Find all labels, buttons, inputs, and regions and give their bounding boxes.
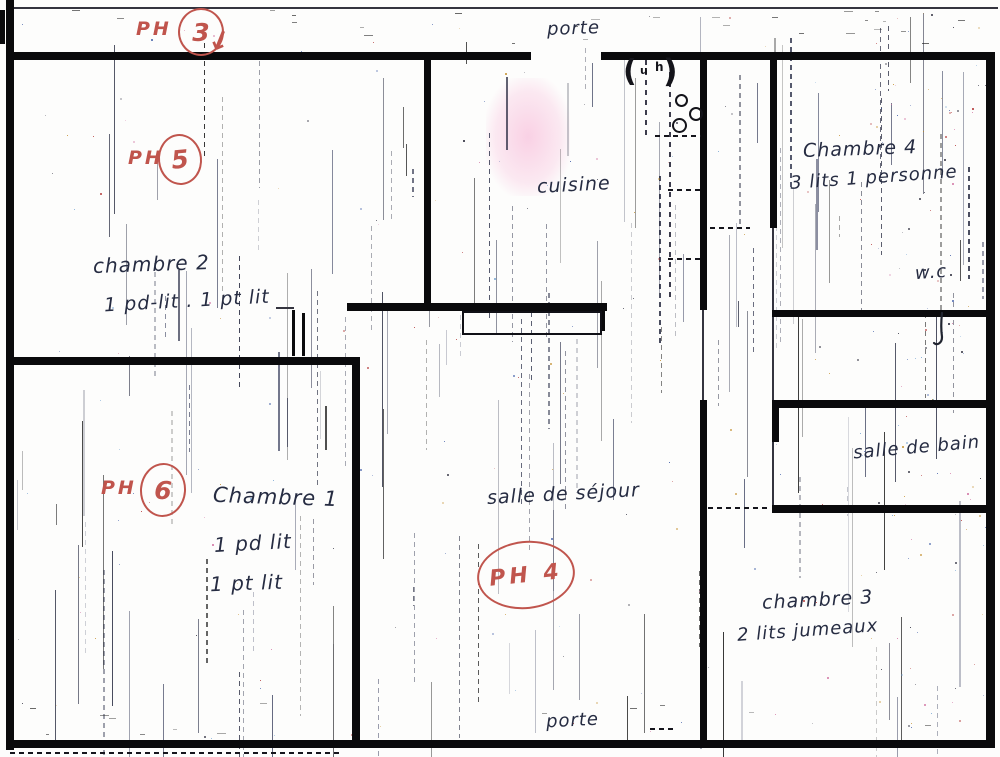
streak bbox=[929, 543, 931, 545]
streak bbox=[269, 317, 271, 319]
streak bbox=[30, 708, 36, 709]
streak bbox=[579, 614, 580, 700]
streak bbox=[927, 308, 928, 309]
streak bbox=[45, 115, 46, 116]
streak bbox=[56, 504, 57, 525]
streak bbox=[345, 317, 346, 467]
streak bbox=[506, 77, 508, 150]
streak bbox=[927, 394, 929, 396]
streak bbox=[793, 187, 794, 324]
wall-cuisine-left bbox=[424, 58, 431, 308]
streak bbox=[269, 403, 271, 405]
streak bbox=[258, 200, 259, 254]
streak bbox=[460, 315, 461, 360]
closet-front-dash-line bbox=[669, 62, 671, 300]
streak bbox=[738, 301, 739, 327]
streak bbox=[27, 493, 28, 494]
streak bbox=[141, 511, 142, 512]
streak bbox=[911, 727, 912, 728]
streak bbox=[658, 258, 660, 260]
streak bbox=[414, 327, 415, 328]
streak bbox=[865, 20, 868, 21]
streak bbox=[968, 306, 969, 307]
streak bbox=[129, 611, 130, 757]
streak bbox=[925, 347, 927, 349]
streak bbox=[875, 11, 879, 12]
streak bbox=[260, 703, 267, 704]
wall-bottom-dash-line bbox=[10, 752, 340, 754]
streak bbox=[274, 735, 275, 736]
streak bbox=[749, 712, 754, 713]
floor-plan-scan: ( ) u h porte cuisine chambre 2 1 pd-lit… bbox=[0, 0, 1000, 757]
streak bbox=[371, 226, 372, 334]
streak bbox=[753, 248, 754, 355]
streak bbox=[908, 471, 910, 473]
wall-wc-top bbox=[772, 310, 993, 317]
streak bbox=[93, 136, 94, 137]
streak bbox=[925, 725, 931, 726]
streak bbox=[921, 475, 922, 476]
streak bbox=[906, 254, 907, 255]
streak bbox=[474, 178, 475, 308]
streak bbox=[919, 198, 921, 200]
streak bbox=[950, 473, 951, 474]
streak bbox=[889, 274, 891, 276]
wall-cuisine-bottom bbox=[347, 303, 607, 311]
streak bbox=[270, 10, 275, 11]
streak bbox=[103, 570, 105, 757]
streak bbox=[902, 232, 903, 233]
streak bbox=[204, 43, 205, 157]
wall-chambre3-top bbox=[772, 505, 993, 513]
streak bbox=[782, 45, 783, 248]
wc-down-arrow-icon bbox=[933, 312, 949, 348]
streak bbox=[870, 123, 872, 125]
streak bbox=[22, 24, 23, 25]
streak bbox=[426, 340, 427, 450]
streak bbox=[317, 291, 318, 486]
fixture-circle-2 bbox=[689, 107, 703, 121]
wall-outer-top-right bbox=[601, 52, 993, 60]
streak bbox=[78, 545, 79, 704]
streak bbox=[82, 421, 83, 547]
streak bbox=[456, 339, 457, 340]
closet-dash-3 bbox=[668, 258, 702, 260]
streak bbox=[898, 425, 899, 426]
streak bbox=[628, 604, 630, 606]
streak bbox=[910, 17, 911, 83]
streak bbox=[937, 473, 938, 474]
streak bbox=[287, 398, 288, 447]
streak bbox=[442, 502, 444, 504]
streak bbox=[917, 632, 918, 633]
streak bbox=[22, 703, 23, 704]
streak bbox=[521, 319, 522, 508]
streak bbox=[718, 340, 719, 406]
closet-mark-1: u bbox=[640, 64, 648, 77]
streak bbox=[494, 468, 495, 469]
streak bbox=[979, 515, 981, 517]
room-label-cuisine: cuisine bbox=[536, 172, 611, 198]
streak bbox=[560, 342, 561, 484]
streak bbox=[72, 10, 80, 11]
streak bbox=[83, 390, 85, 516]
streak bbox=[391, 151, 392, 220]
streak bbox=[626, 514, 627, 515]
streak bbox=[85, 522, 86, 657]
streak bbox=[961, 520, 962, 521]
streak bbox=[908, 725, 910, 727]
room-label-wc: w.c bbox=[914, 261, 948, 284]
wall-chambre4-left bbox=[770, 58, 777, 228]
streak bbox=[80, 612, 81, 613]
streak bbox=[776, 208, 777, 351]
streak bbox=[109, 134, 110, 237]
streak bbox=[976, 65, 977, 66]
streak bbox=[829, 180, 830, 283]
streak bbox=[958, 20, 965, 21]
streak bbox=[923, 13, 924, 14]
streak bbox=[380, 726, 381, 727]
streak bbox=[931, 14, 933, 16]
streak bbox=[198, 619, 199, 733]
streak bbox=[911, 723, 912, 724]
streak bbox=[945, 106, 947, 108]
streak bbox=[489, 133, 490, 321]
streak bbox=[959, 325, 960, 326]
streak bbox=[754, 568, 756, 570]
streak bbox=[383, 78, 384, 220]
streak bbox=[790, 38, 792, 190]
streak bbox=[660, 360, 661, 361]
streak bbox=[897, 638, 898, 639]
streak bbox=[243, 610, 244, 757]
streak bbox=[972, 112, 973, 113]
streak bbox=[861, 575, 862, 576]
streak bbox=[436, 638, 437, 639]
streak bbox=[360, 27, 364, 28]
streak bbox=[325, 406, 327, 450]
door-dash-chambre3 bbox=[708, 507, 770, 509]
streak bbox=[239, 256, 240, 390]
streak bbox=[444, 441, 445, 442]
closet-dash-2 bbox=[668, 189, 702, 191]
streak bbox=[892, 515, 893, 516]
streak bbox=[970, 499, 971, 500]
streak bbox=[191, 328, 192, 493]
streak bbox=[910, 627, 911, 628]
fixture-circle-3 bbox=[672, 118, 687, 133]
streak bbox=[623, 308, 624, 309]
streak bbox=[776, 444, 777, 445]
room-label-chambre1: Chambre 1 bbox=[213, 483, 339, 511]
streak bbox=[112, 551, 113, 706]
streak bbox=[901, 386, 902, 387]
streak bbox=[658, 178, 660, 180]
wall-corridor-upper bbox=[700, 58, 707, 310]
streak bbox=[278, 188, 279, 189]
streak bbox=[570, 161, 571, 162]
streak bbox=[292, 22, 297, 23]
streak bbox=[955, 562, 957, 564]
streak bbox=[585, 48, 586, 92]
streak bbox=[983, 545, 984, 546]
streak bbox=[438, 317, 439, 318]
streak bbox=[928, 89, 929, 90]
streak bbox=[432, 24, 433, 25]
streak bbox=[966, 529, 967, 530]
streak bbox=[550, 363, 552, 365]
streak bbox=[676, 528, 678, 530]
streak bbox=[876, 572, 877, 573]
room-label-chambre4: Chambre 4 bbox=[803, 136, 918, 162]
streak bbox=[941, 98, 942, 99]
streak bbox=[439, 344, 440, 397]
streak bbox=[484, 101, 485, 102]
wall-outer-bottom bbox=[6, 740, 995, 748]
streak bbox=[897, 115, 898, 116]
streak bbox=[446, 330, 447, 365]
streak bbox=[895, 85, 896, 86]
streak bbox=[875, 89, 876, 90]
streak bbox=[952, 183, 954, 185]
streak bbox=[829, 373, 830, 374]
streak bbox=[222, 97, 223, 300]
streak bbox=[708, 667, 709, 668]
streak bbox=[515, 690, 516, 691]
streak bbox=[672, 481, 673, 482]
streak bbox=[846, 33, 855, 34]
streak bbox=[957, 110, 959, 112]
streak bbox=[901, 617, 902, 740]
streak bbox=[479, 162, 480, 163]
wall-outer-top-left bbox=[6, 52, 531, 60]
streak bbox=[895, 343, 896, 482]
streak bbox=[883, 21, 886, 22]
streak bbox=[311, 269, 312, 388]
streak bbox=[885, 63, 887, 65]
streak bbox=[922, 43, 929, 44]
streak bbox=[952, 300, 954, 302]
streak bbox=[983, 695, 984, 696]
streak bbox=[333, 548, 334, 549]
streak bbox=[513, 375, 515, 377]
streak bbox=[904, 118, 906, 120]
streak bbox=[681, 722, 682, 723]
streak bbox=[119, 449, 120, 450]
streak bbox=[930, 210, 931, 211]
streak bbox=[729, 17, 731, 19]
streak bbox=[559, 626, 560, 627]
streak bbox=[878, 502, 880, 504]
streak bbox=[911, 539, 912, 540]
streak bbox=[725, 106, 726, 107]
streak bbox=[387, 305, 388, 434]
streak bbox=[22, 451, 23, 490]
thin-wc-left bbox=[772, 317, 774, 400]
streak bbox=[529, 374, 530, 552]
streak bbox=[910, 105, 911, 106]
streak bbox=[332, 150, 333, 274]
streak bbox=[731, 113, 733, 115]
streak bbox=[874, 29, 882, 30]
streak bbox=[217, 159, 218, 308]
radiator-line-1 bbox=[292, 310, 295, 356]
streak bbox=[459, 28, 460, 29]
streak bbox=[848, 417, 849, 612]
streak bbox=[492, 633, 494, 635]
streak bbox=[827, 677, 829, 679]
streak bbox=[563, 656, 564, 657]
door-label-bottom: porte bbox=[545, 709, 599, 733]
streak bbox=[590, 579, 592, 581]
streak bbox=[879, 701, 881, 703]
door-label-top: porte bbox=[547, 17, 601, 40]
streak bbox=[56, 705, 57, 706]
streak bbox=[260, 688, 261, 689]
streak bbox=[204, 517, 205, 518]
streak bbox=[925, 329, 927, 331]
streak bbox=[723, 25, 730, 26]
streak bbox=[963, 72, 964, 265]
streak bbox=[140, 734, 145, 735]
streak bbox=[982, 242, 984, 299]
streak bbox=[596, 158, 598, 160]
streak bbox=[815, 82, 816, 83]
streak bbox=[907, 359, 908, 360]
streak bbox=[114, 45, 115, 214]
streak bbox=[978, 27, 980, 29]
bed2-label-chambre1: 1 pt lit bbox=[210, 570, 284, 597]
streak bbox=[955, 570, 956, 571]
scan-left-edge-mark bbox=[0, 10, 5, 44]
streak bbox=[189, 385, 190, 452]
streak bbox=[343, 330, 345, 332]
closet-dash-1 bbox=[655, 135, 701, 137]
streak bbox=[897, 18, 898, 19]
streak bbox=[59, 351, 60, 352]
streak bbox=[920, 554, 922, 556]
streak bbox=[412, 169, 414, 197]
streak bbox=[560, 149, 561, 263]
kitchen-counter bbox=[462, 311, 602, 335]
streak bbox=[908, 228, 910, 230]
streak bbox=[406, 144, 407, 176]
streak bbox=[802, 319, 803, 437]
streak bbox=[630, 708, 637, 709]
streak bbox=[211, 738, 212, 739]
thin-salle-de-bain-left bbox=[772, 442, 774, 506]
streak bbox=[815, 359, 816, 360]
streak bbox=[799, 33, 804, 34]
streak bbox=[661, 327, 662, 393]
streak bbox=[951, 112, 952, 113]
streak bbox=[980, 478, 981, 479]
streak bbox=[204, 736, 206, 738]
streak bbox=[897, 697, 898, 757]
streak bbox=[772, 17, 778, 18]
wall-corridor-lower bbox=[700, 400, 707, 748]
streak bbox=[954, 129, 955, 130]
streak bbox=[567, 83, 569, 156]
streak bbox=[744, 479, 745, 548]
streak bbox=[876, 126, 878, 128]
streak bbox=[968, 167, 970, 279]
streak bbox=[505, 614, 506, 615]
streak bbox=[118, 520, 119, 521]
streak bbox=[524, 72, 525, 73]
streak bbox=[955, 145, 956, 146]
streak bbox=[592, 63, 593, 107]
streak bbox=[757, 83, 758, 143]
streak bbox=[364, 35, 373, 36]
streak bbox=[52, 173, 53, 174]
streak bbox=[953, 27, 954, 28]
wall-salle-de-bain-left bbox=[772, 408, 779, 442]
streak bbox=[631, 223, 632, 423]
streak bbox=[949, 110, 950, 111]
wall-chambre1-top bbox=[6, 357, 360, 365]
radiator-tick bbox=[276, 307, 294, 309]
streak bbox=[378, 224, 379, 225]
streak bbox=[974, 664, 975, 665]
streak bbox=[376, 70, 378, 72]
streak bbox=[644, 614, 645, 733]
streak bbox=[712, 17, 720, 18]
streak bbox=[333, 606, 334, 757]
streak bbox=[372, 475, 373, 476]
streak bbox=[653, 17, 660, 18]
streak bbox=[462, 252, 463, 253]
scan-noise bbox=[0, 0, 1000, 757]
wall-salle-de-bain-top bbox=[772, 400, 993, 408]
streak bbox=[463, 140, 465, 142]
streak bbox=[46, 734, 49, 735]
streak bbox=[74, 209, 75, 210]
streak bbox=[552, 469, 553, 470]
streak bbox=[360, 208, 362, 210]
streak bbox=[119, 564, 120, 565]
streak bbox=[499, 161, 500, 162]
annotation-ph6-prefix: PH bbox=[101, 477, 137, 499]
streak bbox=[300, 516, 301, 716]
streak bbox=[17, 480, 18, 530]
streak bbox=[924, 704, 926, 706]
streak bbox=[551, 538, 553, 540]
streak bbox=[730, 429, 732, 431]
streak bbox=[173, 729, 177, 730]
streak bbox=[67, 135, 68, 136]
streak bbox=[55, 590, 56, 740]
streak bbox=[360, 469, 362, 471]
streak bbox=[844, 11, 853, 12]
streak bbox=[672, 156, 673, 157]
streak bbox=[942, 71, 943, 175]
streak bbox=[494, 278, 496, 280]
streak bbox=[944, 159, 946, 161]
streak bbox=[952, 614, 954, 616]
streak bbox=[908, 558, 909, 559]
streak bbox=[857, 359, 859, 361]
scan-top-edge-line bbox=[10, 7, 998, 9]
streak bbox=[100, 715, 109, 716]
streak bbox=[960, 240, 961, 281]
streak bbox=[459, 536, 460, 738]
door-dash-bottom bbox=[650, 728, 674, 730]
streak bbox=[292, 15, 296, 16]
streak bbox=[100, 193, 102, 195]
thin-corridor-right bbox=[772, 228, 774, 310]
